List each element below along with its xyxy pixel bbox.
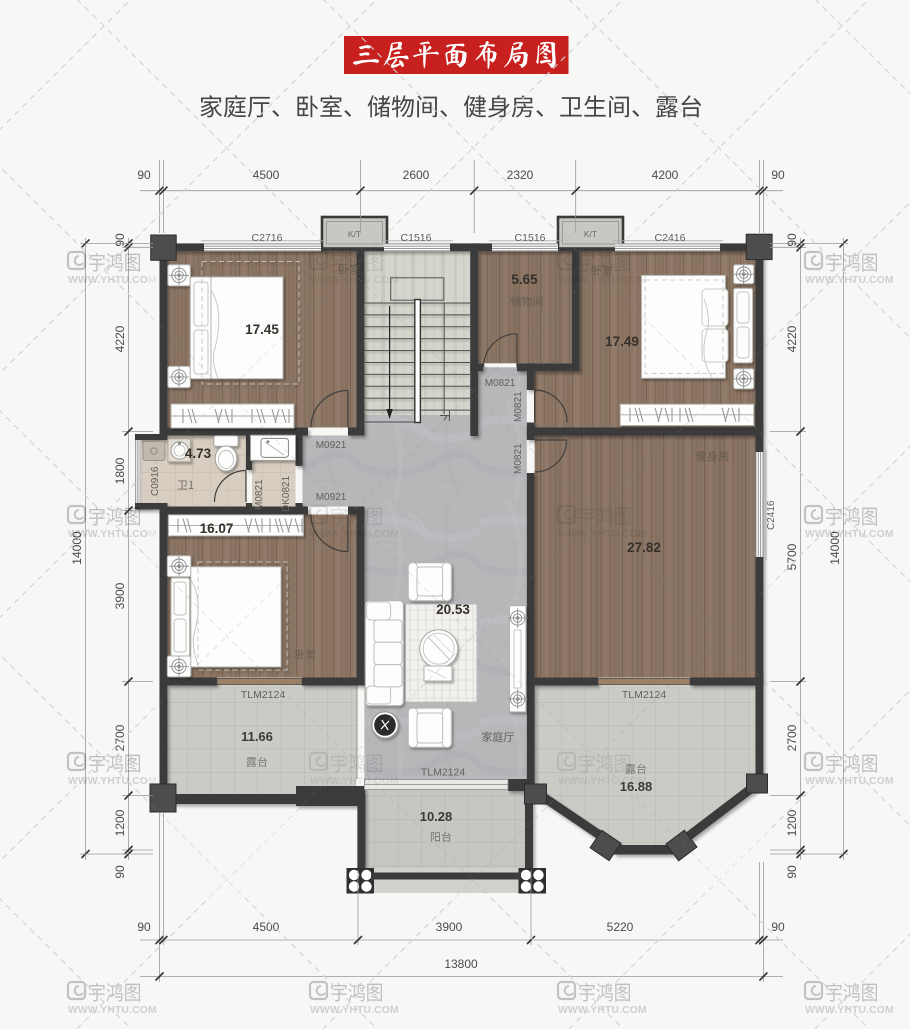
svg-text:2600: 2600 [403,168,430,182]
svg-text:WWW.YHTU.COM: WWW.YHTU.COM [558,776,647,787]
svg-text:11.66: 11.66 [241,729,273,744]
svg-text:3900: 3900 [436,920,463,934]
svg-text:M0821: M0821 [513,443,524,474]
svg-text:WWW.YHTU.COM: WWW.YHTU.COM [68,529,157,540]
svg-text:4220: 4220 [113,325,127,352]
svg-text:C2416: C2416 [655,232,686,244]
svg-text:27.82: 27.82 [627,540,661,555]
svg-text:M0921: M0921 [316,492,347,503]
svg-text:4500: 4500 [253,920,280,934]
svg-text:90: 90 [137,920,151,934]
svg-text:17.45: 17.45 [245,322,279,337]
svg-text:WWW.YHTU.COM: WWW.YHTU.COM [68,275,157,286]
svg-text:C2416: C2416 [766,500,777,530]
svg-text:WWW.YHTU.COM: WWW.YHTU.COM [805,776,894,787]
svg-text:16.07: 16.07 [200,521,234,536]
svg-text:WWW.YHTU.COM: WWW.YHTU.COM [310,529,399,540]
svg-text:K/T: K/T [584,229,597,239]
svg-text:WWW.YHTU.COM: WWW.YHTU.COM [805,529,894,540]
svg-text:M0921: M0921 [316,440,347,451]
svg-text:2320: 2320 [507,168,534,182]
svg-text:13800: 13800 [444,957,478,971]
svg-text:90: 90 [137,168,151,182]
svg-text:90: 90 [771,168,785,182]
svg-text:WWW.YHTU.COM: WWW.YHTU.COM [68,776,157,787]
svg-text:17.49: 17.49 [605,334,639,349]
svg-text:C1516: C1516 [515,232,546,244]
svg-text:WWW.YHTU.COM: WWW.YHTU.COM [310,776,399,787]
svg-text:WWW.YHTU.COM: WWW.YHTU.COM [805,1005,894,1016]
svg-text:WWW.YHTU.COM: WWW.YHTU.COM [558,1005,647,1016]
svg-text:C1516: C1516 [401,232,432,244]
svg-text:90: 90 [113,233,127,247]
svg-text:5700: 5700 [785,543,799,570]
svg-text:90: 90 [113,865,127,879]
svg-text:1800: 1800 [113,457,127,484]
svg-text:1200: 1200 [113,809,127,836]
svg-text:1200: 1200 [785,809,799,836]
svg-text:4200: 4200 [652,168,679,182]
svg-text:WWW.YHTU.COM: WWW.YHTU.COM [310,275,399,286]
svg-text:WWW.YHTU.COM: WWW.YHTU.COM [68,1005,157,1016]
svg-text:C0916: C0916 [150,466,161,496]
svg-text:M0821: M0821 [513,391,524,422]
svg-text:90: 90 [785,865,799,879]
svg-text:4220: 4220 [785,325,799,352]
svg-text:5220: 5220 [607,920,634,934]
svg-text:10.28: 10.28 [420,809,453,824]
svg-text:C2716: C2716 [252,232,283,244]
svg-text:90: 90 [771,920,785,934]
svg-text:2700: 2700 [785,724,799,751]
svg-text:M0821: M0821 [485,378,516,389]
svg-text:TLM2124: TLM2124 [241,689,286,701]
svg-text:5.65: 5.65 [511,272,538,287]
svg-text:3900: 3900 [113,582,127,609]
svg-text:TLM2124: TLM2124 [421,767,466,779]
svg-text:WWW.YHTU.COM: WWW.YHTU.COM [558,275,647,286]
svg-text:WWW.YHTU.COM: WWW.YHTU.COM [805,275,894,286]
svg-text:K/T: K/T [348,229,361,239]
svg-text:DK0821: DK0821 [281,475,292,512]
svg-text:90: 90 [785,233,799,247]
svg-text:M0821: M0821 [254,479,265,510]
svg-text:4500: 4500 [253,168,280,182]
svg-text:4.73: 4.73 [185,446,212,461]
